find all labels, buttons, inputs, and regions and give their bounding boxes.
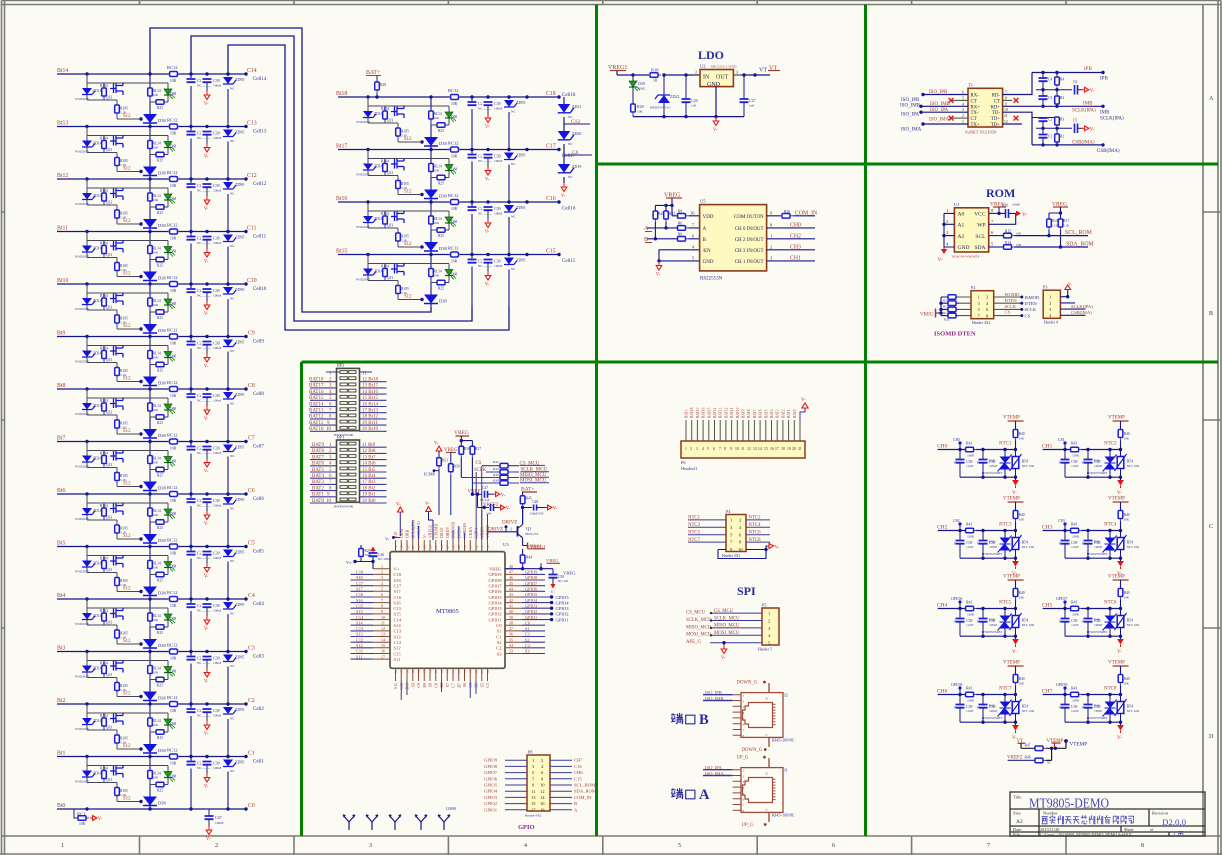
svg-text:76: 76: [451, 670, 455, 674]
svg-text:S17: S17: [356, 587, 364, 592]
svg-text:VREG1: VREG1: [530, 546, 547, 551]
svg-text:SCL: SCL: [975, 234, 986, 240]
svg-text:8: 8: [743, 734, 745, 738]
svg-text:BAT1: BAT1: [787, 409, 791, 418]
svg-text:S18: S18: [356, 575, 363, 580]
svg-text:GPIO3: GPIO3: [525, 603, 537, 608]
svg-text:D2.0.0: D2.0.0: [1162, 818, 1186, 827]
svg-text:TX+: TX+: [971, 123, 980, 128]
svg-text:Bt16: Bt16: [336, 196, 347, 202]
svg-text:A: A: [1209, 96, 1214, 102]
svg-text:L0008: L0008: [446, 807, 456, 811]
svg-text:P8: P8: [528, 750, 532, 755]
svg-text:C1: C1: [525, 632, 530, 637]
svg-text:Title: Title: [1013, 795, 1021, 800]
svg-text:R6: R6: [678, 222, 682, 226]
svg-text:GPIO6: GPIO6: [951, 596, 962, 601]
svg-text:C2: C2: [496, 646, 502, 651]
svg-text:BAT18: BAT18: [690, 407, 694, 418]
svg-text:C16: C16: [574, 764, 582, 769]
svg-text:CS: CS: [1025, 313, 1031, 318]
svg-text:100nF: 100nF: [1012, 203, 1020, 207]
svg-text:C: C: [1209, 524, 1213, 530]
svg-text:70: 70: [417, 670, 421, 674]
svg-text:NC/100nF: NC/100nF: [378, 557, 392, 561]
svg-text:S13: S13: [394, 634, 402, 639]
svg-text:41: 41: [509, 603, 513, 608]
svg-text:Revision: Revision: [1152, 811, 1169, 816]
svg-text:B: B: [699, 712, 709, 728]
svg-text:S16: S16: [356, 598, 364, 603]
svg-text:S13: S13: [356, 632, 363, 637]
svg-text:IBIAS: IBIAS: [439, 528, 444, 538]
svg-text:100nF: 100nF: [215, 821, 224, 825]
svg-text:C7: C7: [451, 683, 456, 688]
svg-text:C3: C3: [1048, 96, 1052, 100]
svg-text:C:\Users\..\20230909_MT9805-DE: C:\Users\..\20230909_MT9805-DEMO_DEMO.Sc…: [1040, 832, 1133, 837]
svg-text:14: 14: [540, 795, 545, 800]
svg-text:P3: P3: [1043, 285, 1047, 290]
svg-text:R31: R31: [442, 459, 448, 463]
svg-text:Bt0: Bt0: [57, 803, 65, 809]
svg-text:15: 15: [531, 801, 536, 806]
svg-text:Cell7: Cell7: [253, 445, 264, 450]
svg-text:Cell13: Cell13: [253, 130, 267, 135]
svg-text:RS22553N: RS22553N: [700, 277, 723, 282]
svg-text:GND: GND: [958, 245, 970, 251]
svg-text:Cell4: Cell4: [253, 602, 264, 607]
svg-text:VDD: VDD: [703, 215, 714, 220]
svg-text:CH2: CH2: [790, 234, 801, 240]
svg-text:4: 4: [524, 843, 527, 849]
svg-text:21: 21: [411, 545, 415, 549]
svg-text:Bt5: Bt5: [57, 541, 65, 547]
svg-text:GPIO3: GPIO3: [484, 795, 498, 800]
svg-text:MIC5233-3.3YM5: MIC5233-3.3YM5: [711, 65, 737, 69]
svg-text:NC/1uF: NC/1uF: [558, 579, 569, 583]
svg-text:C15: C15: [394, 606, 402, 611]
svg-text:37: 37: [509, 626, 513, 631]
svg-text:V-: V-: [425, 502, 430, 507]
svg-text:BAT2: BAT2: [781, 409, 785, 418]
svg-text:B: B: [1209, 311, 1213, 317]
svg-text:3: 3: [369, 843, 372, 849]
svg-text:S6: S6: [462, 683, 467, 687]
svg-text:Cell9: Cell9: [253, 340, 264, 345]
svg-text:C80: C80: [953, 437, 960, 442]
svg-text:11: 11: [741, 447, 745, 451]
svg-text:C4: C4: [248, 593, 255, 599]
svg-text:S2: S2: [525, 637, 530, 642]
svg-text:Bt9: Bt9: [57, 331, 65, 337]
svg-text:8: 8: [1005, 96, 1007, 100]
svg-text:U5: U5: [700, 199, 706, 204]
svg-text:77: 77: [457, 670, 461, 674]
svg-text:C8: C8: [248, 383, 255, 389]
svg-text:8: 8: [381, 603, 383, 608]
svg-text:DRM: DRM: [399, 528, 404, 538]
svg-text:GPIO4: GPIO4: [484, 789, 498, 794]
svg-text:VCC: VCC: [974, 212, 986, 218]
svg-text:11: 11: [531, 789, 536, 794]
svg-text:5: 5: [743, 792, 745, 796]
svg-text:VTEMP: VTEMP: [1003, 416, 1020, 421]
svg-text:A1: A1: [958, 223, 965, 229]
svg-text:V-: V-: [434, 442, 439, 447]
svg-text:2: 2: [962, 114, 964, 118]
svg-text:CKRA: CKRA: [468, 527, 473, 538]
svg-text:U2: U2: [700, 64, 706, 69]
svg-text:3: 3: [696, 447, 698, 451]
svg-text:4: 4: [743, 786, 745, 790]
svg-text:ROM: ROM: [986, 186, 1015, 200]
svg-text:R32: R32: [944, 318, 950, 322]
svg-text:COM OUT/IN: COM OUT/IN: [734, 215, 764, 220]
svg-text:16: 16: [381, 649, 385, 654]
svg-text:16: 16: [765, 772, 769, 776]
svg-text:VREG: VREG: [546, 558, 559, 563]
svg-text:NC: NC: [1047, 761, 1051, 765]
svg-text:R1: R1: [1060, 135, 1064, 139]
svg-text:C2: C2: [1048, 118, 1052, 122]
svg-text:Header 4X2: Header 4X2: [972, 321, 991, 325]
svg-text:U1: U1: [954, 202, 960, 207]
svg-text:Cell16: Cell16: [562, 207, 576, 212]
svg-text:8: 8: [743, 809, 745, 813]
svg-text:VTEMP: VTEMP: [1108, 416, 1125, 421]
svg-text:C81: C81: [1058, 437, 1065, 442]
svg-text:ISO_IMB: ISO_IMB: [900, 104, 921, 109]
svg-text:10: 10: [540, 783, 545, 788]
svg-text:22: 22: [417, 545, 421, 549]
svg-text:16: 16: [770, 447, 774, 451]
svg-text:CH4: CH4: [937, 603, 948, 609]
svg-text:A0: A0: [958, 212, 965, 218]
svg-text:NTC4: NTC4: [1104, 523, 1117, 528]
svg-text:S3: S3: [497, 651, 503, 656]
svg-text:VTEMP: VTEMP: [1108, 497, 1125, 502]
svg-text:CSB(IMA): CSB(IMA): [1071, 310, 1092, 315]
svg-text:SDA: SDA: [974, 245, 985, 251]
svg-text:BAT15: BAT15: [707, 407, 711, 418]
svg-text:C11: C11: [356, 649, 363, 654]
svg-text:SCLK(IPA): SCLK(IPA): [1071, 304, 1093, 309]
svg-text:SCL_ROM: SCL_ROM: [1065, 230, 1092, 236]
svg-text:GPIO2: GPIO2: [525, 609, 537, 614]
svg-text:Cell12: Cell12: [253, 182, 267, 187]
svg-text:4: 4: [381, 581, 383, 586]
svg-text:C13: C13: [247, 121, 257, 127]
svg-text:4: 4: [743, 711, 745, 715]
svg-text:RJ45-16P/8C: RJ45-16P/8C: [772, 813, 795, 818]
svg-text:File:: File:: [1013, 832, 1021, 837]
svg-text:66: 66: [394, 670, 398, 674]
svg-text:Header 5X2: Header 5X2: [722, 554, 741, 558]
svg-text:C10: C10: [247, 278, 257, 284]
svg-text:R18: R18: [651, 68, 659, 73]
svg-text:SDA_ROM: SDA_ROM: [574, 789, 596, 794]
svg-text:6: 6: [743, 798, 745, 802]
svg-text:R30: R30: [454, 465, 460, 469]
svg-text:Cell15: Cell15: [562, 259, 576, 264]
svg-text:BAT4: BAT4: [770, 409, 774, 418]
svg-text:ISO_IPB: ISO_IPB: [901, 98, 920, 103]
svg-text:BAT16: BAT16: [702, 407, 706, 418]
svg-text:Header 4: Header 4: [1044, 321, 1058, 325]
svg-text:V-: V-: [938, 257, 943, 263]
svg-text:GPIO1: GPIO1: [525, 615, 537, 620]
svg-text:10K: 10K: [637, 110, 643, 114]
svg-text:B7: B7: [456, 683, 461, 688]
svg-text:12: 12: [540, 789, 545, 794]
svg-text:R17: R17: [1063, 219, 1069, 223]
svg-text:ISO_IPB: ISO_IPB: [929, 90, 948, 95]
svg-text:C6: C6: [1073, 80, 1077, 84]
svg-text:19: 19: [787, 447, 791, 451]
svg-text:2: 2: [690, 447, 692, 451]
svg-text:20: 20: [792, 447, 796, 451]
svg-text:Bt17: Bt17: [336, 144, 347, 150]
svg-text:73: 73: [434, 670, 438, 674]
svg-text:UP_G: UP_G: [737, 756, 750, 761]
svg-text:Cell10: Cell10: [253, 287, 267, 292]
svg-text:C16: C16: [546, 196, 556, 202]
svg-text:C18: C18: [546, 91, 556, 97]
svg-text:16: 16: [540, 801, 545, 806]
svg-text:14: 14: [758, 447, 762, 451]
svg-text:S14: S14: [356, 620, 364, 625]
svg-text:GPIO6: GPIO6: [484, 776, 498, 781]
svg-text:27: 27: [446, 545, 450, 549]
svg-text:VTEMP: VTEMP: [1070, 741, 1088, 747]
svg-text:ZD21: ZD21: [572, 104, 581, 109]
svg-text:R4: R4: [1060, 78, 1064, 82]
svg-text:S8050-J3Y: S8050-J3Y: [525, 532, 539, 536]
svg-text:CH 0 IN/OUT: CH 0 IN/OUT: [735, 227, 764, 232]
svg-text:C0: C0: [248, 803, 255, 809]
svg-text:NC: NC: [568, 175, 573, 179]
svg-text:R2: R2: [1060, 96, 1064, 100]
svg-text:C83: C83: [1058, 518, 1065, 523]
svg-text:P2: P2: [971, 285, 975, 290]
svg-text:C6: C6: [572, 150, 579, 156]
svg-text:T1: T1: [968, 83, 973, 88]
svg-text:BAT8: BAT8: [747, 409, 751, 418]
svg-text:Cell8: Cell8: [253, 392, 264, 397]
svg-text:5: 5: [707, 447, 709, 451]
svg-text:28: 28: [451, 545, 455, 549]
svg-text:J2: J2: [784, 693, 788, 698]
svg-text:CH6: CH6: [574, 770, 583, 775]
svg-text:BAT13: BAT13: [719, 407, 723, 418]
svg-text:9: 9: [730, 447, 732, 451]
svg-text:C8: C8: [433, 683, 438, 688]
svg-text:GPIO2: GPIO2: [556, 612, 570, 617]
svg-text:12: 12: [747, 447, 751, 451]
svg-text:MM3Z5V6T1G: MM3Z5V6T1G: [650, 106, 671, 110]
svg-text:46: 46: [509, 575, 513, 580]
svg-text:R39: R39: [493, 478, 499, 482]
svg-text:29: 29: [457, 545, 461, 549]
svg-text:5: 5: [381, 587, 383, 592]
svg-text:7: 7: [743, 803, 745, 807]
svg-text:C17: C17: [356, 581, 364, 586]
svg-text:CH6: CH6: [937, 689, 948, 695]
svg-text:C12: C12: [571, 119, 580, 125]
svg-text:C13: C13: [356, 626, 363, 631]
svg-text:RX-: RX-: [971, 94, 980, 99]
svg-text:P6: P6: [681, 460, 685, 465]
svg-text:R37: R37: [475, 447, 481, 451]
svg-text:10: 10: [735, 447, 739, 451]
svg-text:S8: S8: [428, 683, 433, 687]
svg-text:R12: R12: [943, 311, 949, 315]
svg-text:Bt12: Bt12: [57, 173, 68, 179]
svg-text:1: 1: [1173, 832, 1176, 838]
svg-text:C1: C1: [1048, 135, 1052, 139]
svg-text:ISO_IMB: ISO_IMB: [930, 102, 951, 107]
svg-text:S11: S11: [393, 683, 398, 689]
svg-text:V-: V-: [801, 398, 806, 403]
svg-text:BAT3: BAT3: [776, 409, 780, 418]
svg-text:1: 1: [946, 208, 948, 213]
svg-text:Cell2: Cell2: [253, 707, 264, 712]
svg-text:9: 9: [765, 809, 769, 811]
svg-text:R9: R9: [678, 233, 682, 237]
svg-text:1uF: 1uF: [749, 104, 754, 108]
svg-text:NTC1: NTC1: [999, 442, 1012, 447]
svg-text:RD-: RD-: [992, 94, 1001, 99]
svg-text:11: 11: [1004, 114, 1008, 118]
svg-text:R43: R43: [493, 467, 499, 471]
svg-text:17: 17: [775, 447, 779, 451]
svg-text:C0: C0: [496, 623, 502, 628]
svg-text:8: 8: [1141, 843, 1144, 849]
svg-text:GPIO1: GPIO1: [488, 617, 502, 622]
svg-text:B9: B9: [422, 683, 427, 688]
svg-text:CSB(IMA): CSB(IMA): [1097, 149, 1120, 154]
svg-text:7: 7: [987, 843, 990, 849]
svg-text:Header 9X2: Header 9X2: [525, 814, 542, 818]
svg-text:OUT: OUT: [716, 75, 729, 81]
svg-text:2: 2: [770, 245, 772, 250]
svg-text:33: 33: [509, 649, 513, 654]
svg-text:39: 39: [509, 615, 513, 620]
svg-text:C17: C17: [546, 144, 556, 150]
svg-text:IMB: IMB: [1083, 102, 1093, 107]
svg-text:C47: C47: [482, 486, 488, 490]
svg-text:R28: R28: [637, 104, 644, 109]
svg-text:1: 1: [381, 564, 383, 569]
svg-text:RC1: RC1: [77, 812, 85, 817]
svg-text:CSB(IMA): CSB(IMA): [1072, 141, 1095, 146]
svg-text:D: D: [1209, 734, 1214, 740]
svg-text:3: 3: [743, 780, 745, 784]
svg-text:Cell11: Cell11: [253, 235, 267, 240]
svg-text:36: 36: [509, 632, 513, 637]
svg-text:GPIO3: GPIO3: [488, 606, 502, 611]
svg-text:ZD19: ZD19: [572, 164, 581, 169]
svg-text:BP1: BP1: [337, 435, 344, 440]
svg-text:C9: C9: [248, 331, 255, 337]
svg-text:S15: S15: [394, 612, 402, 617]
svg-text:R36: R36: [464, 447, 470, 451]
svg-text:VREG: VREG: [489, 567, 502, 572]
svg-text:GPIO6: GPIO6: [488, 589, 502, 594]
svg-text:A: A: [699, 787, 710, 803]
svg-text:CH1: CH1: [1042, 444, 1053, 450]
svg-text:1: 1: [743, 694, 745, 698]
svg-text:Bt15: Bt15: [336, 249, 347, 255]
svg-text:GPIO: GPIO: [518, 824, 535, 831]
svg-text:NTC5: NTC5: [999, 601, 1012, 606]
svg-text:RD+: RD+: [991, 105, 1001, 110]
svg-text:15: 15: [764, 447, 768, 451]
svg-text:38: 38: [509, 620, 513, 625]
svg-text:ISO_IPA: ISO_IPA: [901, 113, 920, 118]
svg-text:SPI: SPI: [737, 584, 756, 598]
svg-text:23: 23: [423, 545, 427, 549]
svg-text:C26: C26: [691, 98, 698, 103]
svg-text:32: 32: [474, 545, 478, 549]
svg-text:VTEMP: VTEMP: [1108, 575, 1125, 580]
svg-text:74: 74: [440, 670, 444, 674]
svg-text:GRE..: GRE..: [638, 87, 647, 91]
svg-text:13: 13: [381, 632, 385, 637]
svg-text:GPIO1: GPIO1: [556, 617, 570, 622]
svg-text:GPIO8: GPIO8: [525, 575, 537, 580]
svg-text:DRDY: DRDY: [445, 527, 450, 538]
svg-text:C14: C14: [247, 68, 257, 74]
svg-text:C11: C11: [394, 651, 402, 656]
svg-text:75: 75: [446, 670, 450, 674]
svg-text:47: 47: [509, 570, 513, 575]
svg-text:CH0: CH0: [790, 223, 801, 229]
svg-text:SCLK(IPA): SCLK(IPA): [1100, 117, 1124, 122]
svg-text:21: 21: [798, 447, 802, 451]
svg-text:VT: VT: [759, 68, 767, 74]
svg-text:S11: S11: [356, 654, 363, 659]
svg-text:Bt3: Bt3: [57, 646, 65, 652]
svg-text:Cell6: Cell6: [253, 497, 264, 502]
svg-text:3: 3: [381, 575, 383, 580]
svg-text:C5: C5: [485, 683, 490, 688]
svg-text:45: 45: [509, 581, 513, 586]
svg-text:IPB: IPB: [1100, 77, 1108, 82]
svg-text:C18: C18: [356, 570, 363, 575]
svg-text:Bt18: Bt18: [336, 91, 347, 97]
svg-text:TD+: TD+: [991, 117, 1000, 122]
svg-text:Bt14: Bt14: [57, 68, 68, 74]
svg-text:BAT17: BAT17: [696, 407, 700, 418]
svg-text:12: 12: [381, 626, 385, 631]
svg-text:C6: C6: [248, 488, 255, 494]
svg-text:S15: S15: [356, 609, 363, 614]
svg-text:44: 44: [509, 587, 513, 592]
svg-text:GPIO3: GPIO3: [556, 606, 570, 611]
svg-text:C18: C18: [394, 572, 402, 577]
svg-text:7: 7: [743, 728, 745, 732]
svg-text:BAT11: BAT11: [730, 408, 734, 418]
svg-text:R10: R10: [943, 299, 949, 303]
svg-text:S1: S1: [525, 626, 530, 631]
svg-text:GPIO9: GPIO9: [1056, 682, 1067, 687]
svg-text:GPIO5: GPIO5: [488, 595, 502, 600]
svg-text:R11: R11: [943, 305, 949, 309]
svg-text:A2: A2: [958, 234, 965, 240]
svg-text:35: 35: [509, 637, 513, 642]
svg-text:DOWN_G: DOWN_G: [737, 681, 758, 686]
